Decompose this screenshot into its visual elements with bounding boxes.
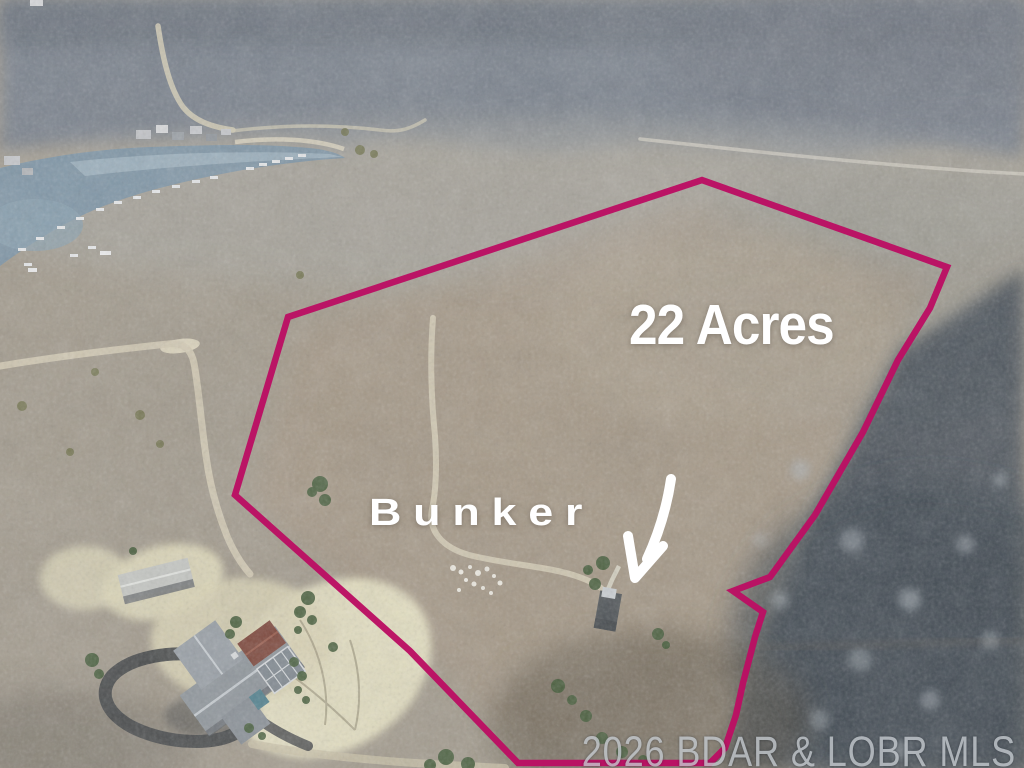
mls-watermark: 2026 BDAR & LOBR MLS: [582, 731, 1016, 768]
bunker-label: Bunker: [369, 494, 594, 532]
acreage-label: 22 Acres: [629, 297, 834, 354]
noise-texture: [0, 0, 1024, 768]
aerial-photo-art: [0, 0, 1024, 768]
property-aerial-photo: 22 Acres Bunker 2026 BDAR & LOBR MLS: [0, 0, 1024, 768]
